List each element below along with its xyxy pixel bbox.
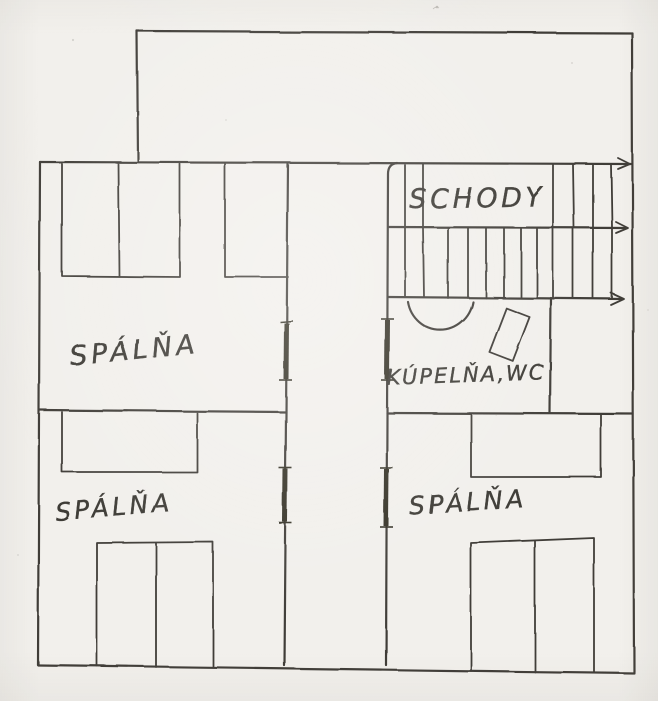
- room-labels: SCHODY SPÁLŇA SPÁLŇA SPÁLŇA KÚPELŇA,WC: [54, 182, 546, 527]
- door-markers: [279, 319, 394, 527]
- wall-extension-left: [137, 31, 138, 161]
- closet-right: [471, 414, 601, 477]
- wall-extension-top: [137, 31, 632, 33]
- bed-right: [471, 538, 594, 672]
- wall-bathroom-right: [550, 298, 551, 413]
- stair-treads-lower: [405, 227, 612, 298]
- closet-mid-left: [62, 412, 197, 472]
- interior-walls: [40, 163, 633, 665]
- wardrobe-top-left: [62, 164, 180, 277]
- wall-left-rooms-divider: [40, 410, 286, 412]
- door-corridor-left-lower: [279, 468, 292, 523]
- closet-top-left-single: [225, 164, 288, 277]
- wall-left: [38, 162, 40, 665]
- stair-winder-curve: [408, 302, 473, 330]
- wall-right: [632, 33, 634, 672]
- label-bathroom-wc: KÚPELŇA,WC: [386, 359, 546, 390]
- wall-bottom: [38, 665, 634, 673]
- bed-bottom-left: [97, 542, 213, 667]
- label-bedroom-right: SPÁLŇA: [408, 484, 527, 521]
- bathroom-fixtures: [489, 308, 529, 361]
- wall-main-top: [40, 162, 631, 164]
- label-bedroom-bottom-left: SPÁLŇA: [54, 488, 174, 527]
- door-corridor-left-upper: [279, 321, 293, 380]
- label-bedroom-top-left: SPÁLŇA: [69, 327, 200, 372]
- wall-corridor-left: [284, 164, 288, 665]
- stair-mid-line: [389, 227, 627, 228]
- bathroom-fixture-rect: [489, 308, 529, 361]
- floor-plan-svg: SCHODY SPÁLŇA SPÁLŇA SPÁLŇA KÚPELŇA,WC: [0, 0, 658, 701]
- wall-bathroom-bottom: [387, 413, 633, 414]
- door-corridor-right-lower: [380, 468, 393, 527]
- label-stairs: SCHODY: [409, 182, 545, 215]
- scan-speckles: [17, 6, 649, 556]
- scanned-floor-plan-page: SCHODY SPÁLŇA SPÁLŇA SPÁLŇA KÚPELŇA,WC: [0, 0, 658, 701]
